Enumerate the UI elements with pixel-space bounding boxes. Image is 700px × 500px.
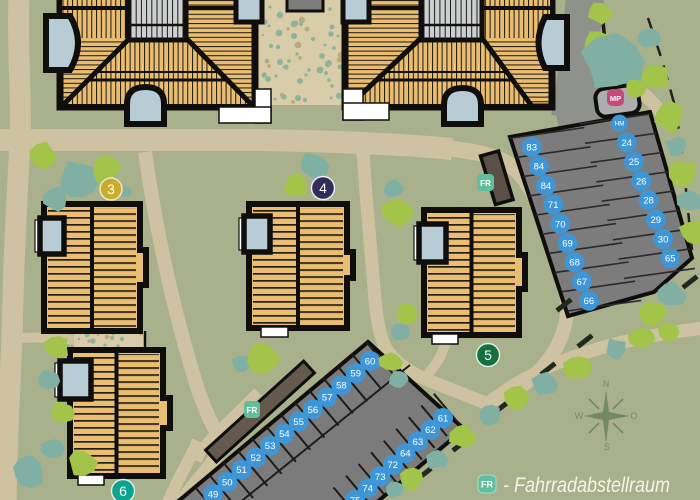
svg-text:67: 67 <box>577 277 588 288</box>
svg-text:5: 5 <box>484 347 492 363</box>
svg-text:59: 59 <box>350 369 361 380</box>
svg-text:4: 4 <box>319 180 327 196</box>
svg-text:S: S <box>604 442 610 452</box>
svg-text:74: 74 <box>362 484 373 495</box>
svg-text:W: W <box>575 411 584 421</box>
svg-text:69: 69 <box>562 239 573 250</box>
svg-text:71: 71 <box>548 200 559 211</box>
svg-text:FR: FR <box>247 406 258 415</box>
svg-text:3: 3 <box>107 181 115 197</box>
svg-text:51: 51 <box>236 465 247 476</box>
svg-text:28: 28 <box>643 196 654 207</box>
svg-text:MP: MP <box>610 94 621 103</box>
svg-text:HM: HM <box>614 120 624 127</box>
svg-text:6: 6 <box>119 483 127 499</box>
svg-text:26: 26 <box>636 176 647 187</box>
svg-text:84: 84 <box>541 181 552 192</box>
svg-text:24: 24 <box>622 138 633 149</box>
svg-text:25: 25 <box>629 157 640 168</box>
svg-text:73: 73 <box>375 472 386 483</box>
svg-text:49: 49 <box>208 489 219 500</box>
svg-text:68: 68 <box>569 258 580 269</box>
svg-text:66: 66 <box>584 296 595 307</box>
svg-text:50: 50 <box>222 477 233 488</box>
svg-text:N: N <box>603 379 610 389</box>
svg-text:57: 57 <box>322 393 333 404</box>
svg-text:53: 53 <box>265 441 276 452</box>
svg-text:83: 83 <box>526 143 537 154</box>
svg-text:61: 61 <box>438 413 449 424</box>
svg-text:55: 55 <box>293 417 304 428</box>
svg-text:FR: FR <box>480 179 491 188</box>
svg-text:- Fahrradabstellraum: - Fahrradabstellraum <box>503 473 670 497</box>
svg-text:65: 65 <box>665 254 676 265</box>
svg-text:70: 70 <box>555 219 566 230</box>
svg-text:60: 60 <box>365 356 376 367</box>
svg-text:58: 58 <box>336 381 347 392</box>
svg-text:72: 72 <box>388 460 399 471</box>
svg-text:52: 52 <box>251 453 262 464</box>
svg-text:FR: FR <box>481 480 493 490</box>
svg-text:30: 30 <box>658 234 669 245</box>
svg-text:56: 56 <box>308 405 319 416</box>
svg-text:84: 84 <box>534 162 545 173</box>
svg-text:63: 63 <box>413 437 424 448</box>
svg-text:54: 54 <box>279 429 290 440</box>
svg-text:62: 62 <box>425 425 436 436</box>
svg-text:64: 64 <box>400 449 411 460</box>
svg-text:29: 29 <box>651 215 662 226</box>
svg-text:75: 75 <box>350 495 361 500</box>
svg-text:O: O <box>630 411 637 421</box>
